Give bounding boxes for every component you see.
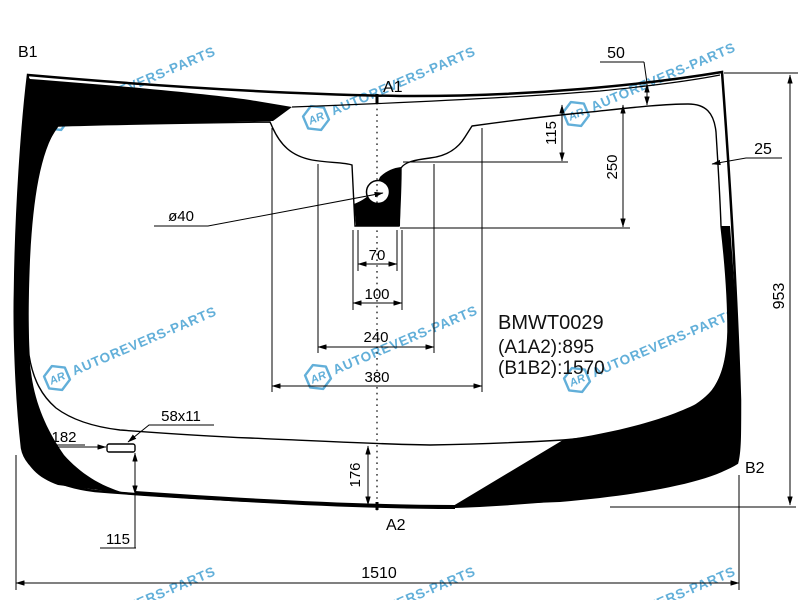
dim-sensor-hole: ø40 <box>168 208 194 225</box>
dim-clip-size: 58x11 <box>161 408 201 425</box>
diagonal-a1a2: (A1A2):895 <box>498 337 594 358</box>
watermark-brand-text: AUTOREVERS-PARTS <box>589 564 738 600</box>
dim-sensor-depth: 250 <box>604 154 621 179</box>
label-b1: B1 <box>18 44 38 61</box>
dim-right-band: 25 <box>754 141 772 158</box>
dim-clip-offset: 182 <box>51 429 76 446</box>
watermark-brand-text: AUTOREVERS-PARTS <box>329 44 478 119</box>
label-b2: B2 <box>745 460 765 477</box>
watermark-logo-text: AR <box>566 106 586 124</box>
dim-bracket-span: 240 <box>363 329 388 346</box>
dim-top-band: 50 <box>607 45 625 62</box>
dim-glass-width: 1510 <box>361 565 397 582</box>
watermark: ARAUTOREVERS-PARTS <box>303 298 482 394</box>
dimension-lines <box>16 62 798 590</box>
watermark-logo-text: AR <box>306 110 326 128</box>
mounting-clip <box>107 444 135 452</box>
label-a1: A1 <box>383 79 403 96</box>
label-a2: A2 <box>386 517 406 534</box>
watermark-brand-text: AUTOREVERS-PARTS <box>69 564 218 600</box>
dim-opening-span: 380 <box>364 369 389 386</box>
watermark-logo-text: AR <box>47 370 67 388</box>
dim-glass-height: 953 <box>771 283 788 310</box>
dim-sensor-top-offset: 115 <box>543 121 560 145</box>
windshield-technical-drawing: ARAUTOREVERS-PARTSARAUTOREVERS-PARTSARAU… <box>0 0 800 600</box>
dim-bottom-band: 176 <box>347 462 364 487</box>
sensor-window-circle <box>367 181 390 204</box>
glass-bottom-edge <box>135 493 455 507</box>
watermark-brand-text: AUTOREVERS-PARTS <box>590 306 739 381</box>
dim-clip-to-edge: 115 <box>106 531 130 548</box>
watermark-logo-text: AR <box>308 369 328 387</box>
dim-stem-outer-width: 100 <box>364 286 389 303</box>
diagonal-b1b2: (B1B2):1570 <box>498 358 605 379</box>
watermark-brand-text: AUTOREVERS-PARTS <box>329 564 478 600</box>
watermark-brand-text: AUTOREVERS-PARTS <box>331 303 480 378</box>
watermark: ARAUTOREVERS-PARTS <box>42 299 221 395</box>
part-number: BMWT0029 <box>498 312 604 334</box>
dim-stem-width: 70 <box>369 247 386 264</box>
watermark-brand-text: AUTOREVERS-PARTS <box>70 304 219 379</box>
watermark: ARAUTOREVERS-PARTS <box>41 559 220 600</box>
watermark: ARAUTOREVERS-PARTS <box>561 559 740 600</box>
